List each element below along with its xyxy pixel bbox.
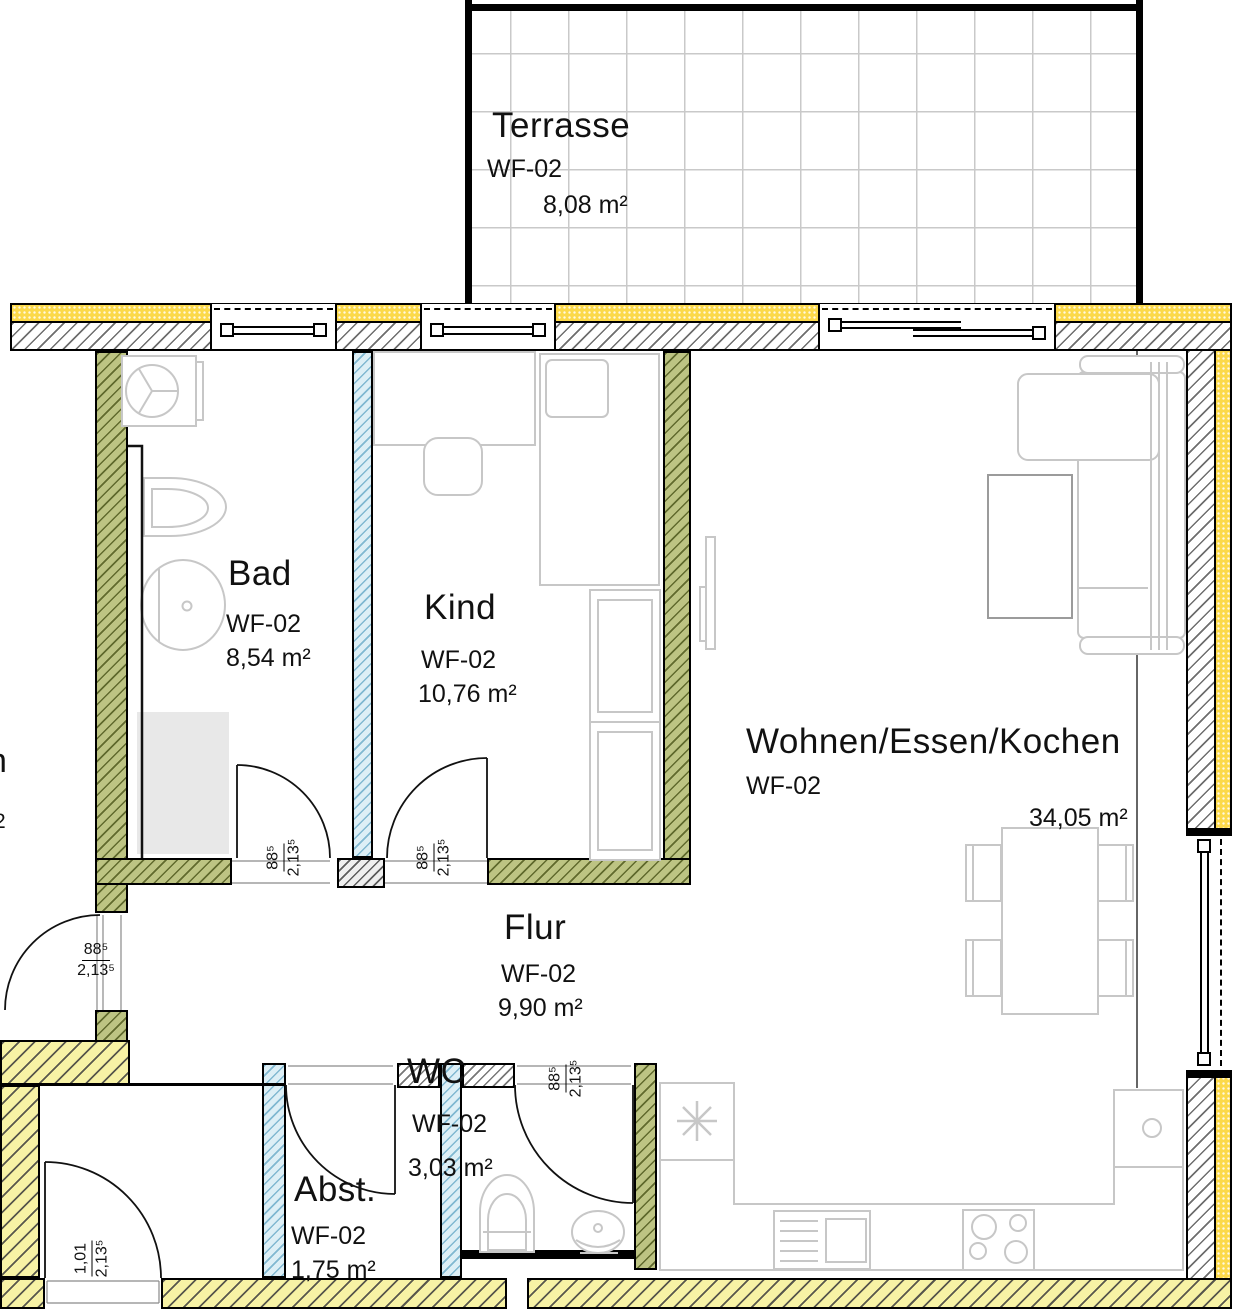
bad-fixtures [122,356,226,650]
dim-bad-door: 88⁵ 2,13⁵ [264,828,305,888]
room-area-abst: 1,75 m² [291,1256,376,1285]
room-code-terrasse: WF-02 [487,155,562,184]
shower-tray [137,712,229,854]
dim-exterior-door: 1,01 2,13⁵ [72,1229,113,1289]
room-area-bad: 8,54 m² [226,644,311,673]
neighbor-label-fragment: n [0,742,7,781]
terrace-border-left [465,0,472,303]
wall-flur-north-left [95,858,232,885]
wall-abst-west [262,1063,286,1278]
freezer [660,1083,734,1160]
floor-plan: Terrasse WF-02 8,08 m² Bad WF-02 8,54 m²… [0,0,1243,1309]
kitchen-counter [660,1083,1183,1270]
room-label-wc: WC [407,1052,466,1092]
window-frame-cap [430,323,444,337]
room-label-kind: Kind [424,588,496,628]
cooktop [963,1210,1034,1270]
lintel-dashed-line [424,308,552,310]
wc-washbasin [572,1211,624,1253]
terrace-border-right [1136,0,1143,303]
room-label-bad: Bad [228,554,292,594]
window-frame-cap [1197,839,1211,853]
sink-cabinet [1114,1090,1183,1167]
chair [966,940,1001,996]
dim-entry-door: 88⁵ 2,13⁵ [70,940,122,981]
wall-stub-entry-bottom [95,1010,128,1042]
room-area-kind: 10,76 m² [418,680,517,709]
wall-wc-south [462,1250,634,1259]
window-glazing [1200,842,1209,1063]
exterior-wall-right [1186,351,1232,1278]
sliding-sash-left [832,321,961,329]
tv-board [700,537,715,649]
wardrobe [590,590,660,860]
sliding-sash-right [913,329,1042,337]
dim-kind-door: 88⁵ 2,13⁵ [414,828,455,888]
washing-machine [122,356,203,426]
dining-set [966,828,1133,1014]
room-area-wohnen: 34,05 m² [1029,804,1128,833]
chair [1098,845,1133,901]
room-area-terrasse: 8,08 m² [543,191,628,220]
wall-flur-north-right [487,858,691,885]
wall-wc-kitchen [634,1063,657,1270]
lintel-dashed-line [1220,839,1222,1066]
freezer-icon [677,1101,717,1141]
wc-fixtures [480,1175,624,1253]
dishwasher [774,1211,870,1269]
terrace-tile-grid [472,11,1136,303]
window-frame-cap [828,318,842,332]
terrace-sliding-door [818,303,1056,351]
terrace-border-top [465,4,1143,11]
window-frame-cap [313,323,327,337]
window-bad [210,303,337,351]
exterior-wall-southwest-h [0,1040,130,1085]
coffee-table [988,475,1072,618]
room-code-bad: WF-02 [226,610,301,639]
sink-drain-icon [1143,1119,1161,1137]
dining-table [1002,828,1098,1014]
room-code-abst: WF-02 [291,1222,366,1251]
chair [966,845,1001,901]
wall-kind-living [663,351,691,885]
kitchen [660,1083,1183,1270]
wall-core [1188,351,1216,1278]
desk-chair [424,438,482,495]
insulation-layer [1214,351,1230,1278]
window-frame-cap [220,323,234,337]
neighbor-sup-fragment: 2 [0,810,6,834]
exterior-wall-south-3 [527,1278,1232,1309]
room-label-terrasse: Terrasse [492,106,630,146]
window-kind [420,303,556,351]
pillar-between-doors [337,858,385,888]
room-label-abst: Abst. [294,1170,376,1210]
room-label-wohnen: Wohnen/Essen/Kochen [746,722,1121,762]
window-glazing [431,326,545,335]
toilet [144,478,226,536]
wall-bad-kind [352,351,373,858]
room-code-flur: WF-02 [501,960,576,989]
window-frame-cap [1032,326,1046,340]
living-furniture [700,356,1185,1014]
chair [1098,940,1133,996]
room-area-flur: 9,90 m² [498,994,583,1023]
bed [540,354,659,585]
window-glazing [221,326,326,335]
corridor-edge-line [40,1083,286,1086]
room-area-wc: 3,03 m² [408,1154,493,1183]
pillow [546,360,608,417]
lintel-dashed-line [822,308,1052,310]
desk [374,352,535,445]
room-code-kind: WF-02 [421,646,496,675]
room-code-wohnen: WF-02 [746,772,821,801]
wc-toilet [480,1175,534,1252]
window-frame-cap [1197,1052,1211,1066]
room-label-flur: Flur [504,908,566,948]
washbasin [141,560,225,650]
kind-furniture [374,352,660,860]
exterior-wall-southwest-v [0,1085,40,1278]
lintel-dashed-line [214,308,333,310]
window-jamb-bottom [1186,1070,1232,1078]
corner-sofa [1018,356,1185,654]
window-living-east [1186,835,1232,1070]
window-frame-cap [532,323,546,337]
window-jamb-top [1186,828,1232,836]
wall-seg-wc-door [462,1063,515,1088]
exterior-wall-south-1 [0,1278,45,1309]
party-wall-west [95,351,128,882]
dim-wc-door: 88⁵ 2,13⁵ [546,1049,587,1109]
room-code-wc: WF-02 [412,1110,487,1139]
